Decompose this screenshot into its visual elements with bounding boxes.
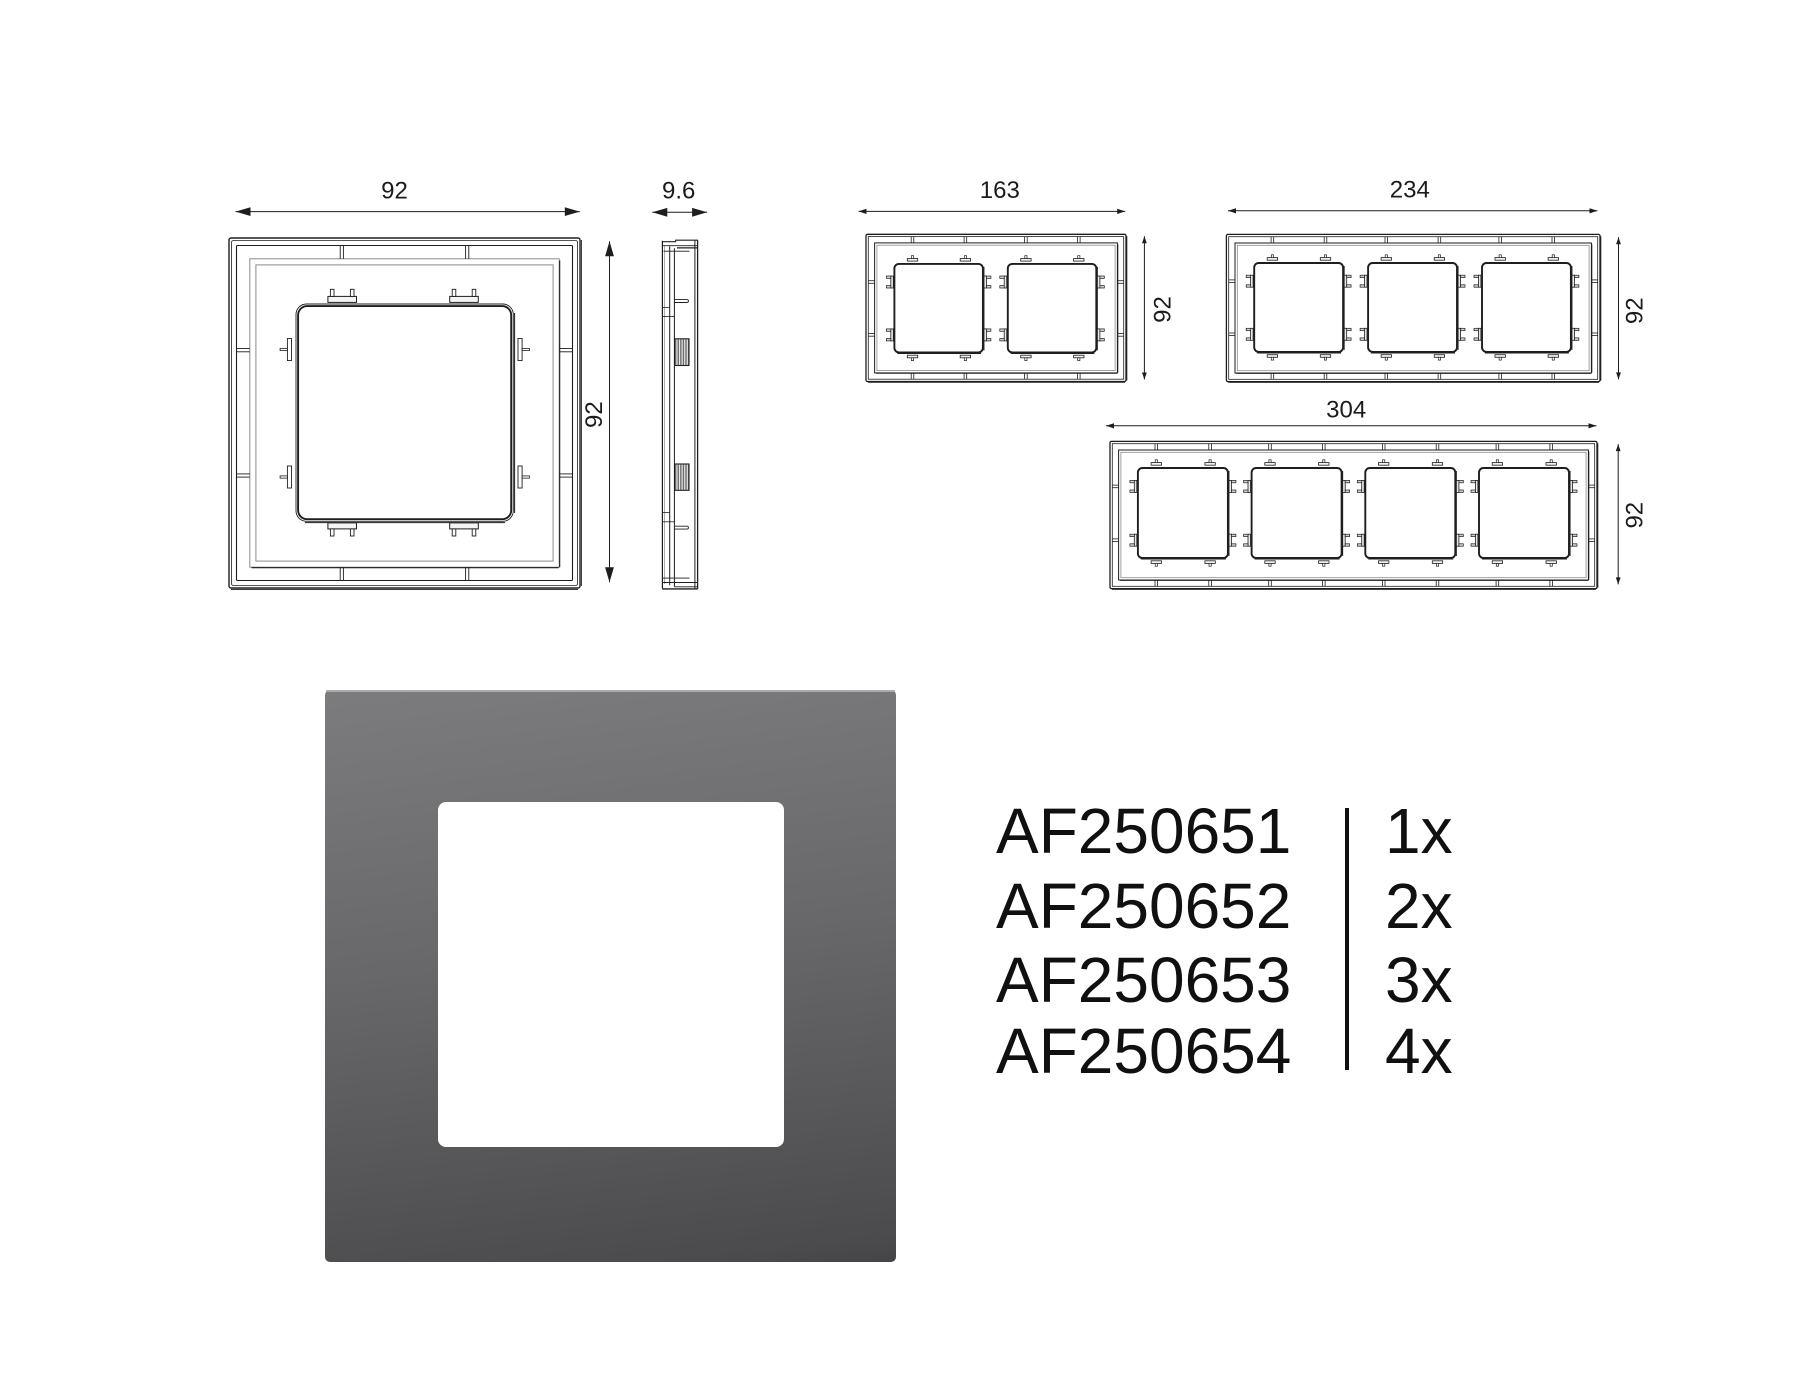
svg-text:9.6: 9.6 xyxy=(662,177,695,204)
svg-text:92: 92 xyxy=(1150,296,1177,323)
svg-text:304: 304 xyxy=(1326,396,1366,423)
svg-text:163: 163 xyxy=(980,177,1020,204)
svg-text:234: 234 xyxy=(1390,177,1430,204)
svg-text:92: 92 xyxy=(1622,297,1649,324)
svg-text:92: 92 xyxy=(381,177,408,204)
svg-text:92: 92 xyxy=(581,401,608,428)
svg-text:92: 92 xyxy=(1622,502,1649,529)
